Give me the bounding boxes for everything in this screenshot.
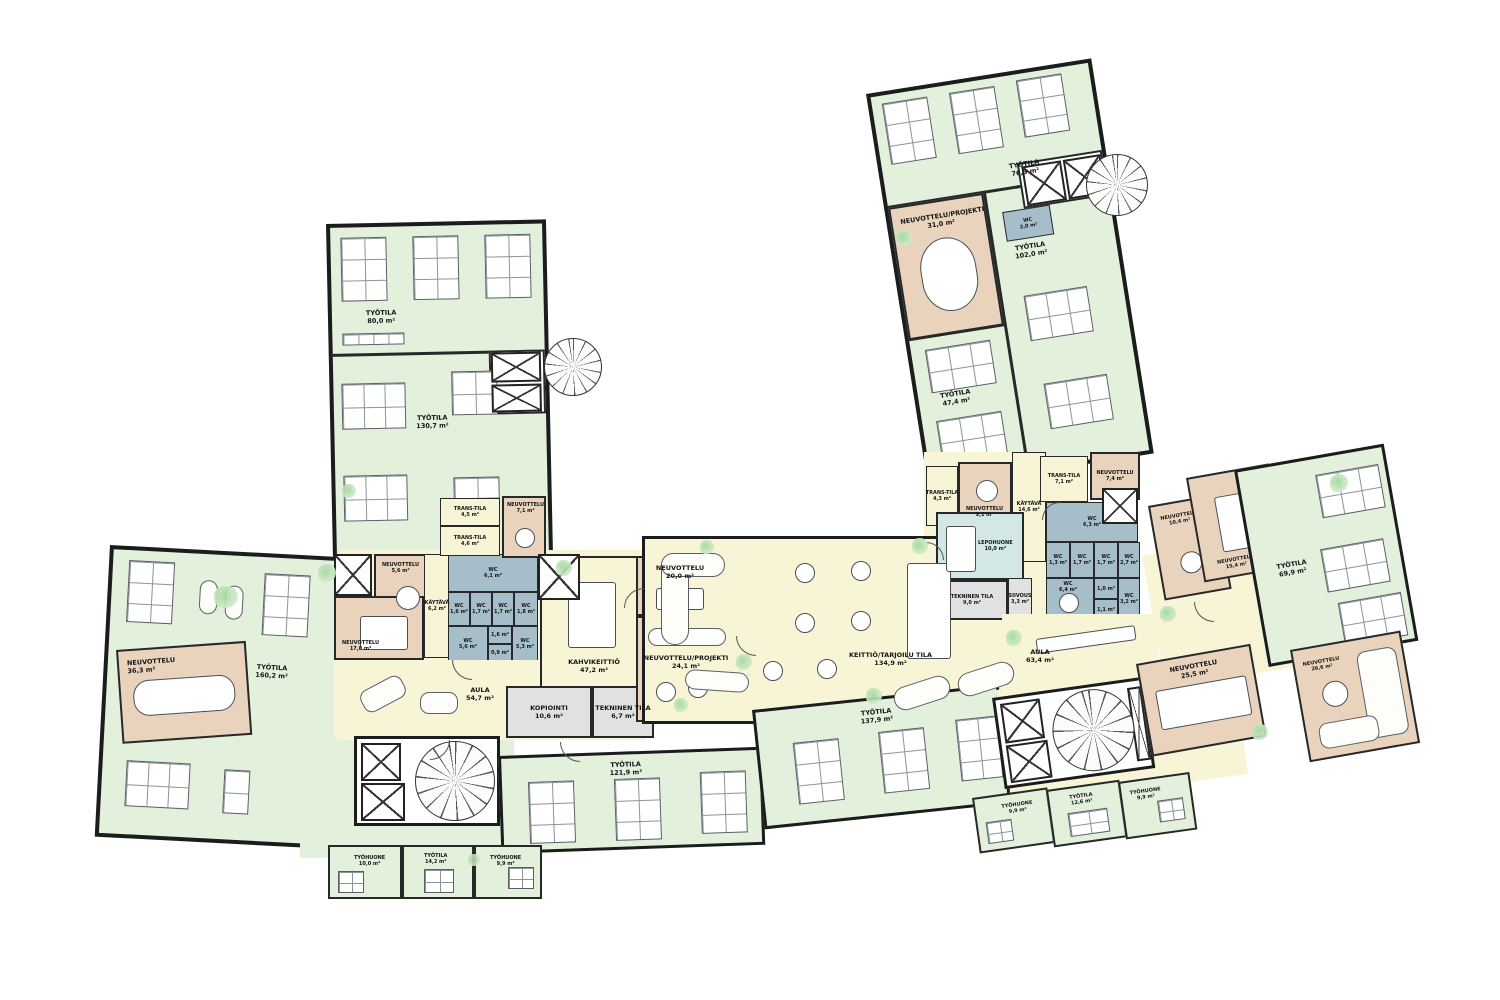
room-label: NEUVOTTELU/PROJEKTI31,0 m²: [900, 206, 982, 235]
desk: [1067, 808, 1110, 837]
room-wc: WC1,7 m²: [1094, 542, 1118, 578]
desk-cluster: [700, 770, 748, 834]
room-label: NEUVOTTELU25,5 m²: [1169, 658, 1219, 682]
room-label: WC5,3 m²: [516, 638, 534, 650]
elevator-shaft: [491, 384, 542, 413]
room-label: WC2,7 m²: [1120, 554, 1138, 566]
room-label: KOPIOINTI10,6 m²: [530, 704, 568, 720]
room-label: WC6,3 m²: [1083, 516, 1101, 528]
room-wc: WC5,6 m²: [448, 626, 488, 662]
room-label: WC1,7 m²: [1097, 554, 1115, 566]
room-tyotila-pieni: TYÖTILA14,2 m²: [402, 845, 474, 899]
room-tyohuone: TYÖHUONE9,9 m²: [474, 845, 542, 899]
room-lepohuone: LEPOHUONE10,0 m²: [936, 512, 1024, 580]
room-label: NEUVOTTELU7,1 m²: [507, 502, 544, 514]
round-table: [817, 659, 837, 679]
room-label: KAHVIKEITTIÖ47,2 m²: [556, 658, 632, 674]
bed: [946, 526, 976, 572]
desk-cluster: [126, 560, 175, 624]
room-neuvottelu: NEUVOTTELU7,1 m²: [502, 496, 546, 558]
room-label: LEPOHUONE10,0 m²: [978, 540, 1013, 552]
room-label: TYÖTILA130,7 m²: [416, 413, 449, 430]
room-label: WC3,2 m²: [1120, 593, 1138, 605]
room-neuvottelu-lounge: NEUVOTTELU26,6 m²: [1290, 631, 1420, 763]
desk: [986, 819, 1015, 844]
elevator-shaft: [1102, 488, 1138, 524]
elevator-shaft: [361, 743, 401, 781]
room-label: TYÖTILA80,0 m²: [366, 309, 397, 326]
meeting-table: [132, 674, 236, 717]
desk-cluster: [453, 476, 499, 499]
room-label: WC1,7 m²: [472, 603, 490, 615]
room-label: TYÖHUONE9,9 m²: [1001, 800, 1034, 816]
room-label: WC1,7 m²: [1073, 554, 1091, 566]
room-wc: WC1,7 m²: [470, 592, 492, 626]
desk-cluster: [1044, 374, 1114, 429]
room-label: WC1,6 m²: [450, 603, 468, 615]
reception-desk: [1035, 625, 1136, 654]
floor-plan: TYÖTILA80,0 m² TYÖTILA130,7 m² TYÖTILA76…: [0, 0, 1500, 1000]
round-table: [515, 528, 535, 548]
room-label: WC1,8 m²: [517, 603, 535, 615]
desk-cluster: [528, 780, 576, 844]
room-label: 1,6 m²: [491, 632, 509, 638]
desk: [508, 867, 534, 889]
room-label: TYÖTILA69,9 m²: [1276, 558, 1309, 579]
desk-cluster: [1320, 538, 1391, 592]
room-label: NEUVOTTELU7,4 m²: [1096, 470, 1133, 482]
desk-cluster: [343, 474, 408, 521]
room-neuvottelu: NEUVOTTELU25,5 m²: [1136, 644, 1267, 757]
room-trans-tila: TRANS-TILA4,5 m²: [440, 498, 500, 526]
round-table: [763, 661, 783, 681]
room-label: WC1,3 m²: [1049, 554, 1067, 566]
room-wc: WC1,8 m²: [514, 592, 538, 626]
room-label: TYÖTILA121,9 m²: [609, 760, 642, 777]
desk-cluster: [793, 738, 845, 804]
room-label: TYÖTILA137,9 m²: [860, 706, 894, 726]
room-trans-tila: TRANS-TILA4,6 m²: [440, 526, 500, 556]
sofa: [661, 553, 725, 577]
spiral-staircase: [544, 338, 602, 396]
room-wc: 1,0 m²: [1094, 578, 1118, 599]
desk-cluster: [124, 760, 190, 809]
room-wc: WC1,7 m²: [1070, 542, 1094, 578]
room-label: TRANS-TILA7,1 m²: [1048, 473, 1081, 485]
room-label: TYÖTILA14,2 m²: [424, 853, 447, 865]
room-tyotila-pieni: TYÖTILA12,6 m²: [1046, 780, 1127, 848]
room-label: WC1,7 m²: [494, 603, 512, 615]
room-label: 1,1 m²: [1097, 607, 1115, 613]
room-label: SIIVOUS3,3 m²: [1009, 593, 1032, 605]
room-tyohuone: TYÖHUONE10,0 m²: [328, 845, 402, 899]
room-tyotila-southcenter2: TYÖTILA137,9 m²: [752, 684, 1011, 829]
desk-cluster: [1016, 73, 1071, 137]
round-table: [976, 480, 998, 502]
round-table: [1320, 679, 1350, 709]
round-table: [795, 613, 815, 633]
round-table: [1059, 593, 1079, 613]
room-label: AULA54,7 m²: [466, 686, 494, 702]
room-label: KÄYTÄVÄ6,2 m²: [425, 600, 450, 612]
room-trans-tila: TRANS-TILA7,1 m²: [1040, 456, 1088, 502]
room-label: WC6,1 m²: [484, 567, 502, 579]
room-wc: WC1,6 m²: [448, 592, 470, 626]
desk-cluster: [949, 86, 1004, 154]
room-wc: 1,6 m²: [488, 626, 512, 644]
sofa: [1317, 714, 1381, 750]
bench-row: [342, 332, 404, 345]
round-table: [795, 563, 815, 583]
round-table: [851, 561, 871, 581]
room-label: WC5,6 m²: [459, 638, 477, 650]
elevator-shaft: [1006, 740, 1053, 783]
desk-cluster: [882, 96, 937, 164]
round-table: [851, 611, 871, 631]
desk: [1157, 797, 1186, 822]
meeting-table: [360, 616, 408, 650]
desk-cluster: [340, 237, 387, 302]
elevator-shaft: [491, 352, 542, 383]
desk: [424, 869, 454, 893]
room-tyohuone: TYÖHUONE9,9 m²: [972, 787, 1055, 853]
wing-northeast: TYÖTILA76,3 m² WC2,0 m² NEUVOTTELU/PROJE…: [866, 58, 1154, 489]
elevator-shaft: [361, 783, 405, 821]
room-label: TYÖHUONE10,0 m²: [354, 855, 385, 867]
meeting-table: [916, 233, 983, 315]
sofa: [357, 673, 409, 716]
spiral-staircase: [415, 741, 495, 821]
room-label: TEKNINEN TILA9,0 m²: [951, 594, 994, 606]
room-wc: WC6,1 m²: [448, 554, 538, 592]
desk-cluster: [222, 769, 250, 814]
room-label: 0,9 m²: [491, 650, 509, 656]
plant: [1252, 724, 1268, 740]
round-table: [656, 682, 676, 702]
room-label: NEUVOTTELU5,6 m²: [382, 562, 419, 574]
desk-cluster: [878, 727, 930, 793]
room-label: WC2,0 m²: [1018, 216, 1038, 231]
desk-cluster: [1024, 286, 1094, 341]
desk-cluster: [925, 340, 997, 394]
room-kaytava: KÄYTÄVÄ6,2 m²: [424, 554, 450, 658]
desk-cluster: [1315, 464, 1386, 518]
room-label: NEUVOTTELU26,6 m²: [1302, 656, 1341, 674]
room-label: TYÖHUONE9,9 m²: [490, 855, 521, 867]
meeting-table: [1155, 675, 1253, 730]
room-label: WC6,4 m²: [1059, 581, 1077, 593]
room-label: 1,0 m²: [1097, 586, 1115, 592]
desk-cluster: [412, 235, 459, 300]
room-label: TYÖTILA12,6 m²: [1069, 792, 1094, 807]
room-label: TYÖTILA160,2 m²: [255, 663, 288, 681]
room-wc: WC5,3 m²: [512, 626, 538, 662]
round-table: [396, 586, 420, 610]
desk-cluster: [484, 234, 531, 299]
sofa: [420, 692, 458, 714]
desk-cluster: [614, 777, 662, 841]
room-neuvottelu-suuri: NEUVOTTELU36,3 m²: [116, 641, 252, 744]
spiral-staircase: [1047, 684, 1140, 777]
room-tyohuone: TYÖHUONE9,9 m²: [1118, 772, 1197, 839]
room-wc: WC1,7 m²: [492, 592, 514, 626]
room-wc: WC1,3 m²: [1046, 542, 1070, 578]
room-kopiointi: KOPIOINTI10,6 m²: [506, 686, 592, 738]
room-wc: WC2,7 m²: [1118, 542, 1140, 578]
room-label: TRANS-TILA4,3 m²: [926, 490, 959, 502]
room-label: NEUVOTTELU36,3 m²: [127, 656, 176, 676]
elevator-shaft: [1000, 698, 1045, 743]
room-label: TRANS-TILA4,6 m²: [454, 535, 487, 547]
room-label: TRANS-TILA4,5 m²: [454, 506, 487, 518]
room-wc: WC2,0 m²: [1002, 205, 1054, 242]
spiral-staircase: [1086, 154, 1148, 216]
room-label: TYÖTILA102,0 m²: [1013, 240, 1048, 261]
desk: [338, 871, 364, 893]
stair-core-southwest: [354, 736, 500, 826]
elevator-shaft: [334, 554, 372, 596]
room-tyotila-southcenter: TYÖTILA121,9 m²: [498, 747, 765, 854]
desk-cluster: [341, 382, 406, 429]
long-table: [907, 563, 951, 659]
elevator-shaft: [1021, 160, 1067, 206]
desk-cluster: [261, 573, 310, 637]
